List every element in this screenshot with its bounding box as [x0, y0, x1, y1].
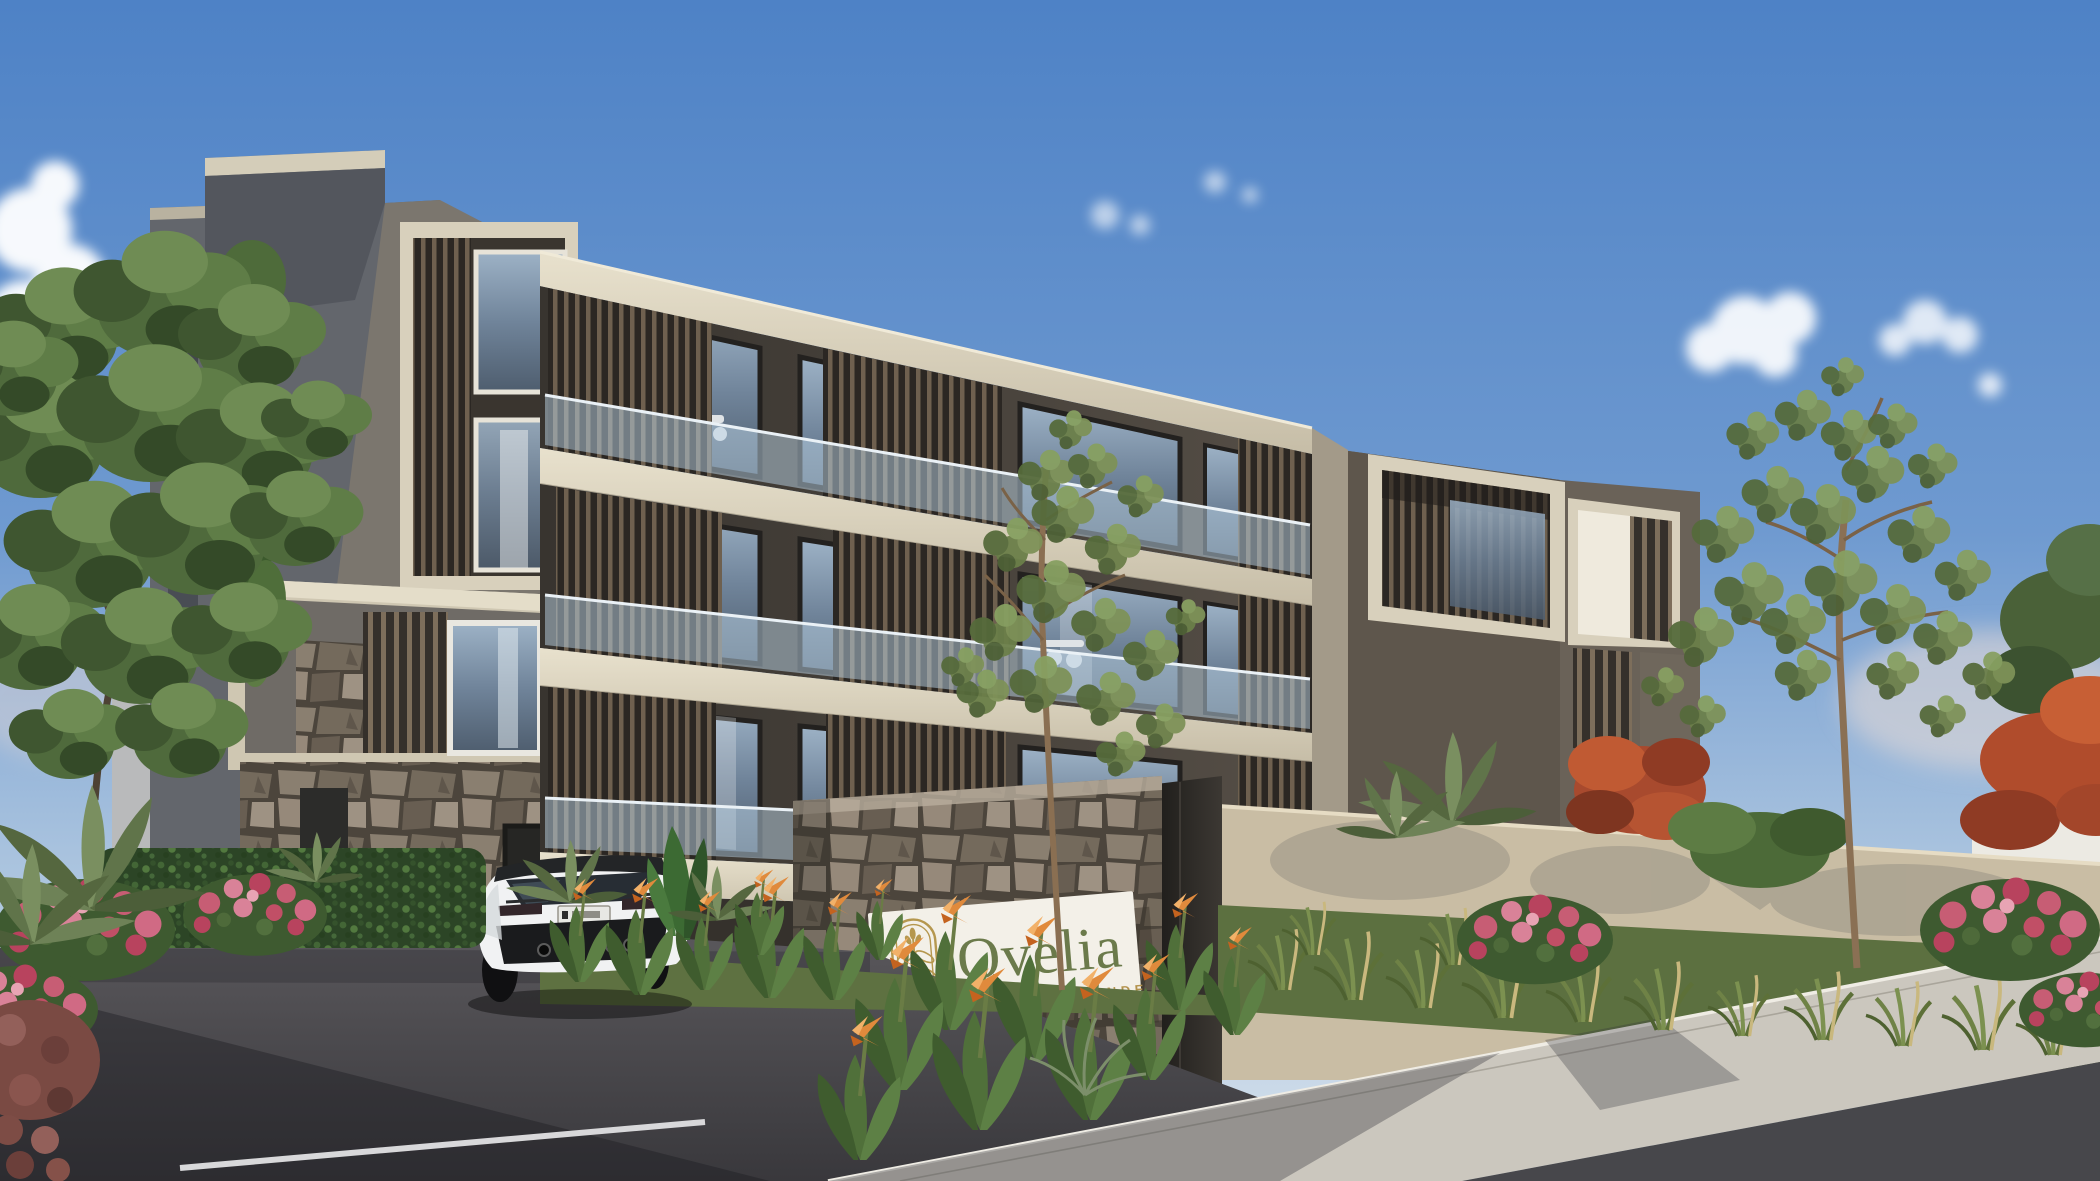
exterior-render: Ovelia AU BOUT DU MONDE — [0, 0, 2100, 1181]
